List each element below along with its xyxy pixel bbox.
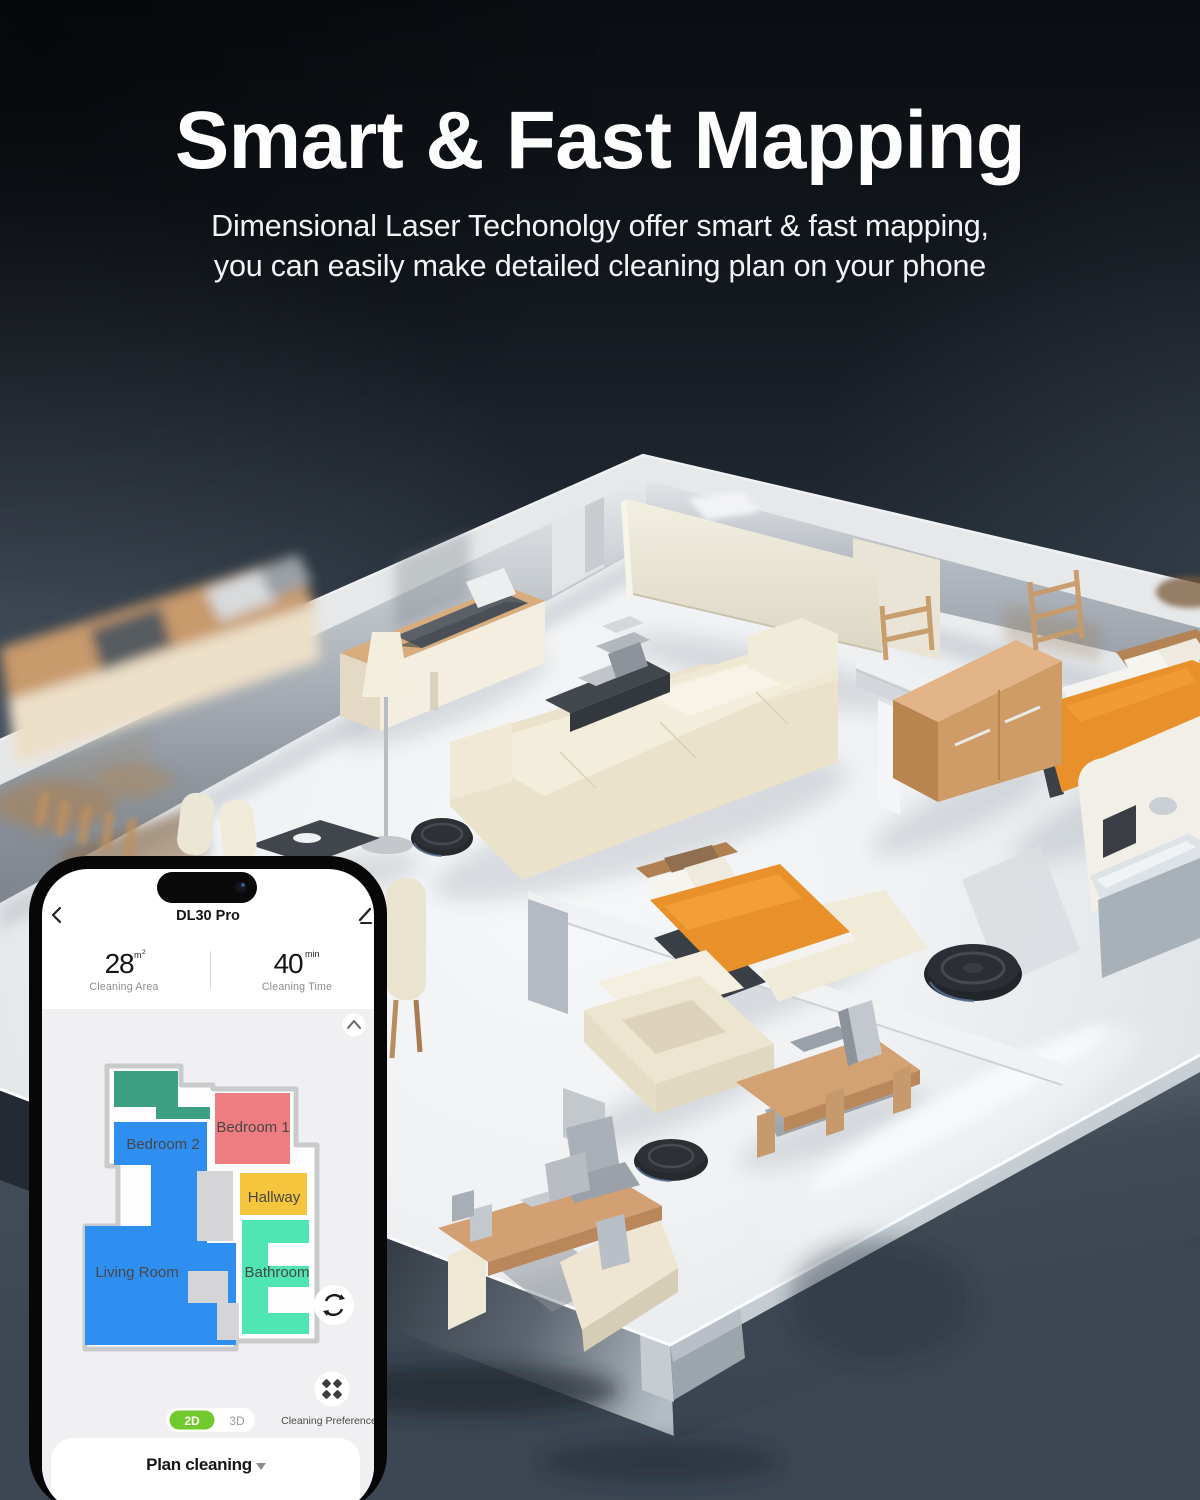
svg-text:Cleaning Preference: Cleaning Preference xyxy=(281,1415,374,1427)
svg-text:min: min xyxy=(305,949,320,959)
svg-text:Hallway: Hallway xyxy=(248,1189,301,1206)
svg-text:Cleaning Time: Cleaning Time xyxy=(262,981,332,993)
svg-text:2D: 2D xyxy=(184,1414,200,1428)
svg-text:m: m xyxy=(134,950,142,960)
svg-text:Plan cleaning: Plan cleaning xyxy=(146,1455,252,1474)
svg-text:Living Room: Living Room xyxy=(95,1264,178,1281)
svg-text:Bedroom 2: Bedroom 2 xyxy=(126,1136,199,1153)
svg-text:Cleaning Area: Cleaning Area xyxy=(89,981,158,993)
svg-text:2: 2 xyxy=(142,949,146,956)
svg-text:Bathroom: Bathroom xyxy=(244,1264,309,1281)
svg-text:28: 28 xyxy=(105,948,134,979)
svg-text:40: 40 xyxy=(274,948,303,979)
svg-text:3D: 3D xyxy=(229,1414,245,1428)
svg-text:Bedroom 1: Bedroom 1 xyxy=(216,1119,289,1136)
svg-text:DL30 Pro: DL30 Pro xyxy=(176,908,240,924)
